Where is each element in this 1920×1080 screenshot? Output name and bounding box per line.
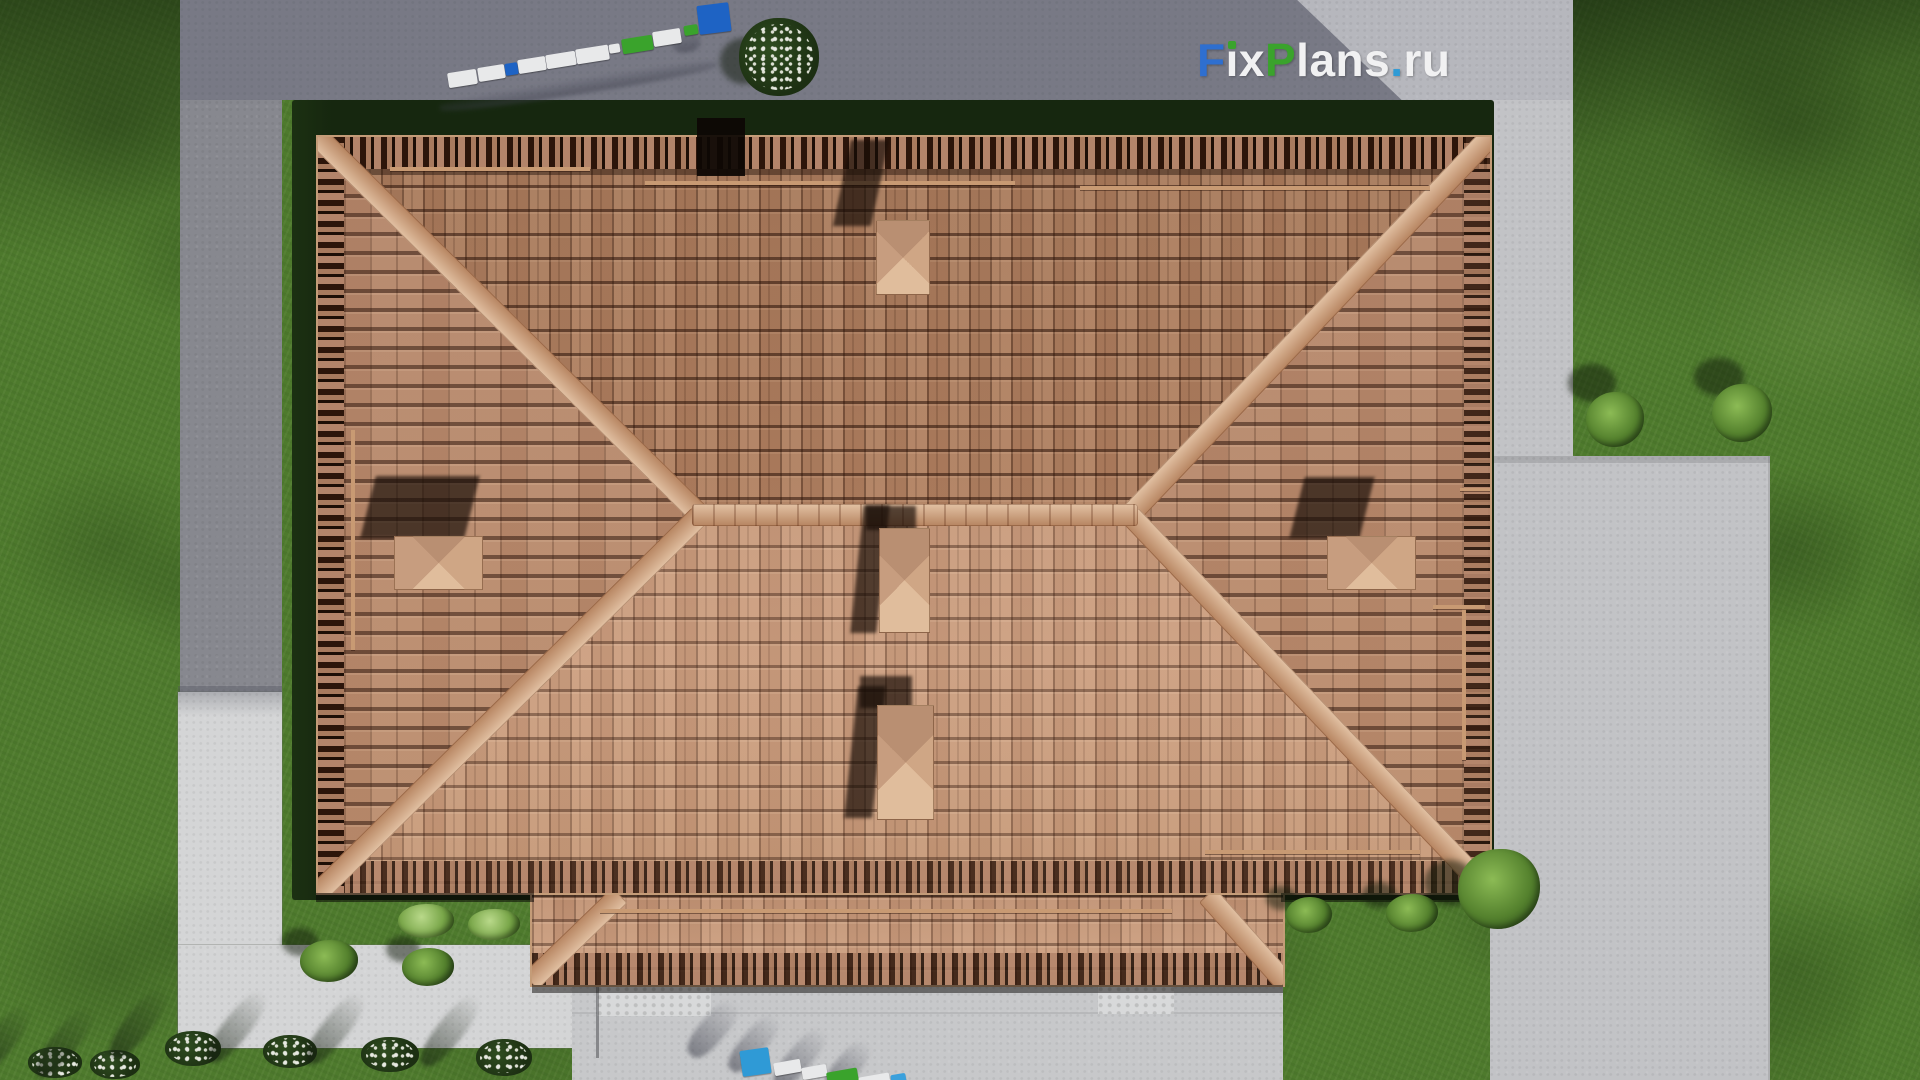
chimney-2-shadow-top [866, 506, 916, 530]
logo-dot: . [1390, 34, 1403, 86]
eave-shadow-porch [532, 985, 1283, 993]
chimney-3-shadow-top [860, 676, 912, 708]
chimney-2 [879, 528, 930, 633]
flower-bush [476, 1039, 532, 1076]
eave-crown-row-top [318, 137, 1490, 169]
eave-crown-row-right [1464, 137, 1490, 893]
chimney-4-shadow [360, 476, 479, 538]
patio-top-edge [1490, 456, 1770, 463]
snow-batten-1 [390, 167, 590, 171]
chimney-3 [877, 705, 934, 820]
batten-vertical-east [1462, 605, 1466, 760]
watermark-logo: FixPlans.ru [1197, 33, 1451, 87]
logo-letters-ix: ix [1226, 34, 1265, 86]
bush [398, 904, 454, 938]
bottom-item-blue [739, 1047, 771, 1077]
bush [1386, 894, 1438, 932]
logo-letters-lans: lans [1296, 34, 1390, 86]
porch-snow-batten [600, 909, 1172, 913]
chimney-5 [1327, 536, 1416, 590]
chimney-1 [876, 220, 930, 295]
porch-junction-line [532, 895, 1283, 897]
logo-letter-f: F [1197, 34, 1226, 86]
batten-vertical-west [351, 430, 355, 650]
bush [1286, 897, 1332, 933]
porch-roof [532, 895, 1283, 985]
porch-step-edge [596, 986, 599, 1058]
batten-dash-east [1460, 488, 1490, 491]
eave-crown-row-bottom [318, 861, 1490, 893]
bench-item-blue-large [696, 2, 731, 35]
path-transition-shade [178, 686, 282, 716]
right-walkway-strip [1490, 100, 1573, 456]
chimney-4 [394, 536, 483, 590]
grass-shadow-top-left [0, 0, 180, 260]
patio-right-edge [1768, 456, 1770, 1080]
eave-shadow-bottom-left [316, 893, 534, 902]
bush [468, 909, 520, 940]
snow-batten-2 [645, 181, 1015, 185]
driveway-left-column [180, 100, 282, 692]
flower-bush [361, 1037, 419, 1072]
batten-crossbar-east [1433, 605, 1485, 609]
bench-item-blue [504, 62, 519, 76]
bottom-item-cyan [890, 1073, 907, 1080]
logo-letters-ru: ru [1404, 34, 1451, 86]
logo-letter-p: P [1265, 34, 1296, 86]
snow-batten-4 [1205, 850, 1420, 854]
aerial-render: FixPlans.ru [0, 0, 1920, 1080]
patio [1490, 456, 1770, 1080]
porch-eave-crown-row [532, 953, 1283, 985]
flowering-shrub [739, 18, 819, 96]
snow-batten-3 [1080, 186, 1430, 190]
roof-vent-dark [697, 118, 745, 176]
eave-crown-row-left [318, 137, 344, 893]
bench-item-small [608, 43, 620, 54]
